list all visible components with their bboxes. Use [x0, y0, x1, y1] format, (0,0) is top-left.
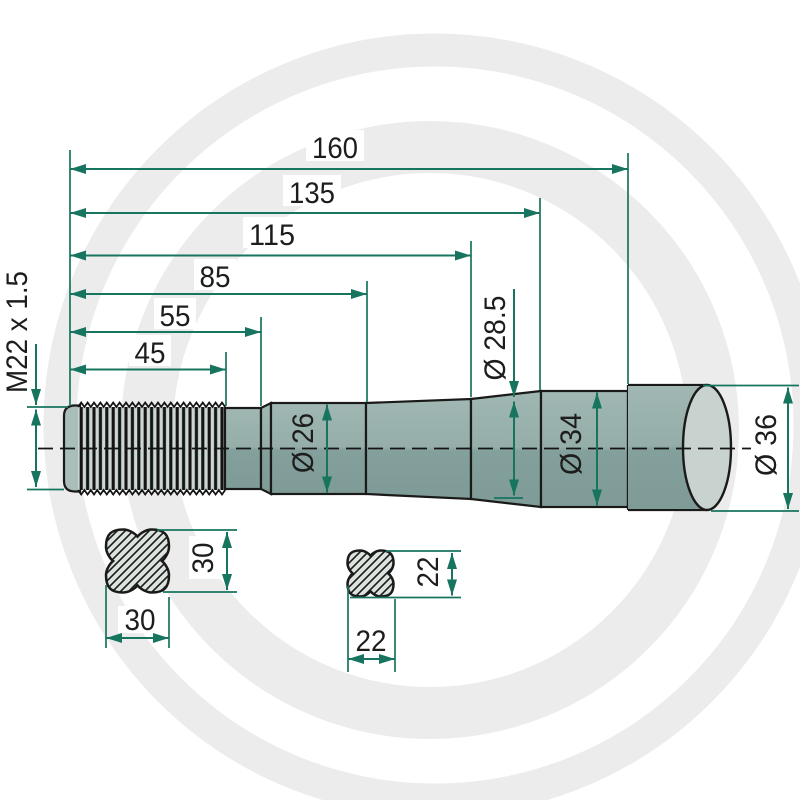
- dim-label-d26: Ø 26: [287, 413, 320, 473]
- dim-label-thread: M22 x 1.5: [1, 271, 34, 393]
- dim-label-d34: Ø 34: [555, 413, 588, 475]
- dim-label-55: 55: [160, 300, 191, 333]
- dim-label-135: 135: [289, 177, 335, 210]
- cross-section-large-profile: [106, 530, 169, 593]
- dim-label-160: 160: [312, 132, 358, 165]
- technical-drawing-page: 160 135 115 85 55 45 M22 x 1.5 Ø 28.5 Ø …: [0, 0, 800, 800]
- dim-label-d36: Ø 36: [750, 414, 783, 476]
- dim-label-85: 85: [200, 261, 231, 294]
- cross-section-small-profile: [348, 551, 394, 597]
- part-end-face: [683, 385, 731, 510]
- dim-label-115: 115: [249, 219, 295, 252]
- dim-label-d285: Ø 28.5: [479, 296, 512, 381]
- dim-label-cs30-width: 30: [125, 604, 156, 637]
- dim-label-45: 45: [135, 337, 166, 370]
- technical-drawing: 160 135 115 85 55 45 M22 x 1.5 Ø 28.5 Ø …: [0, 0, 800, 800]
- dim-label-cs22-width: 22: [356, 625, 387, 658]
- dim-label-cs30-height: 30: [187, 543, 220, 574]
- dim-label-cs22-height: 22: [412, 557, 445, 588]
